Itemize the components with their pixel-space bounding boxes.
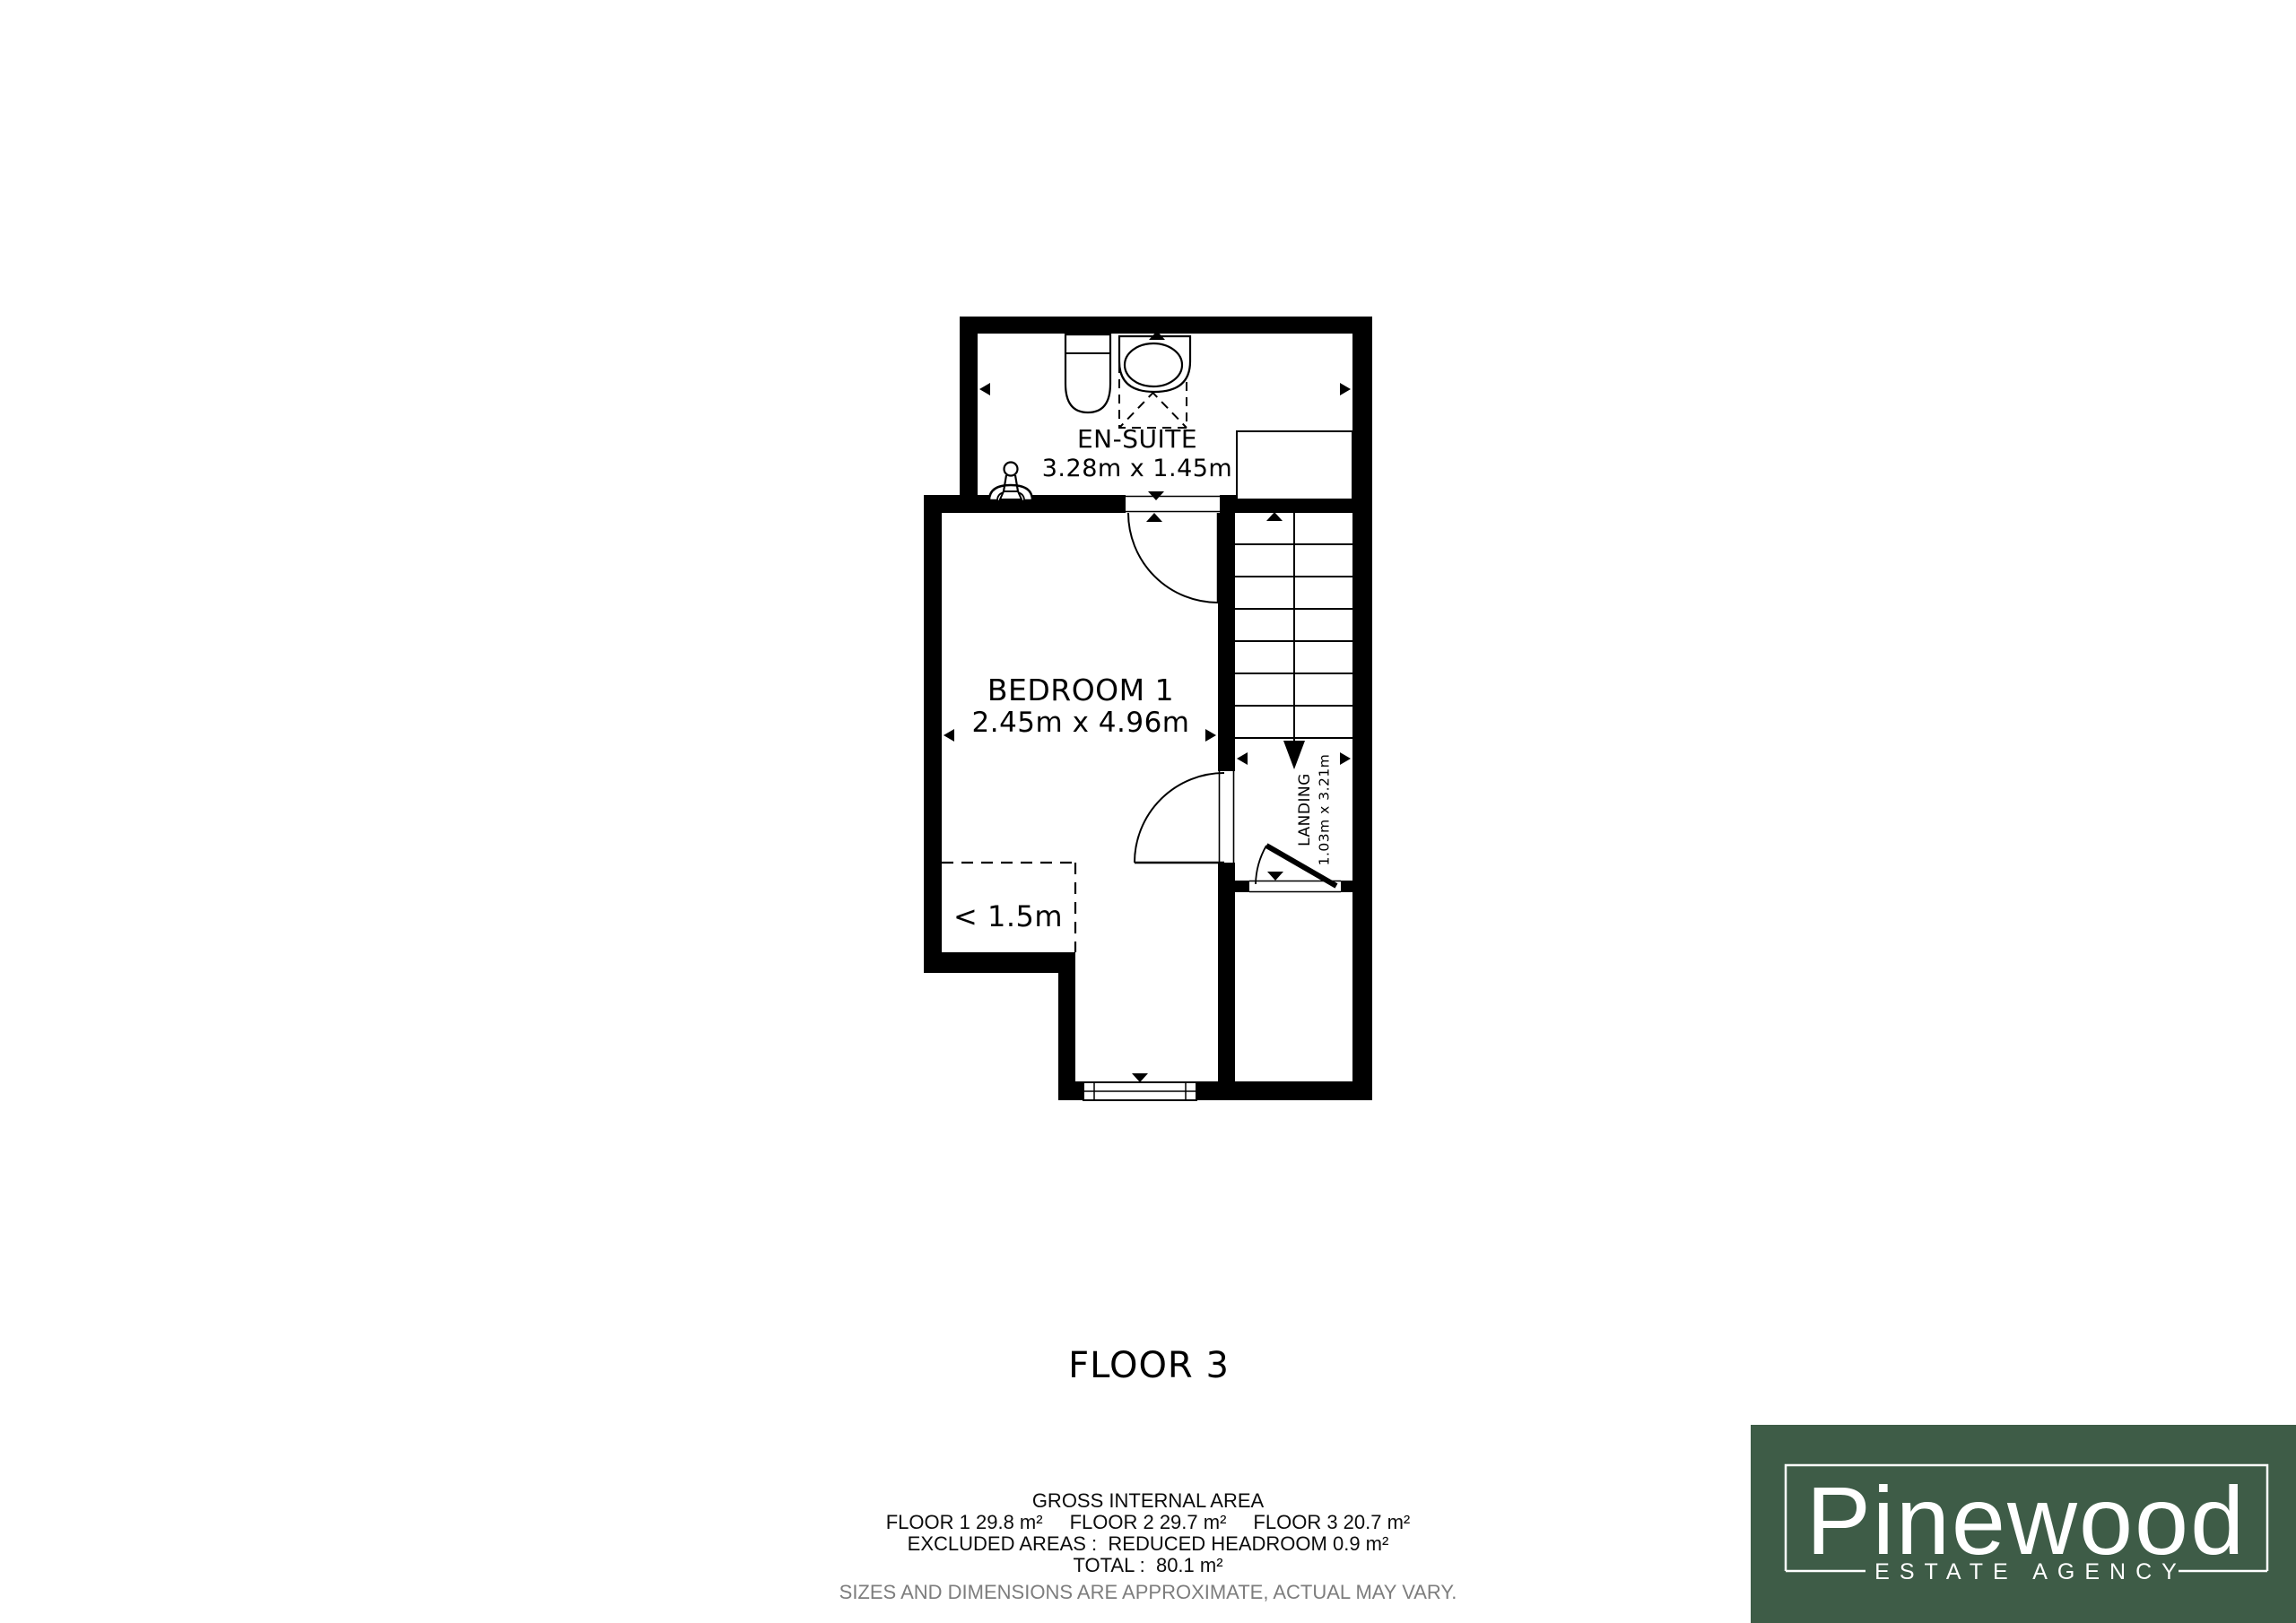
tap-icon: [989, 463, 1032, 501]
floor2-area: FLOOR 2 29.7 m²: [1070, 1512, 1227, 1533]
reduced-headroom-label: < 1.5m: [953, 899, 1063, 933]
floor-areas-row: FLOOR 1 29.8 m² FLOOR 2 29.7 m² FLOOR 3 …: [789, 1512, 1507, 1533]
bedroom-door: [1135, 773, 1224, 863]
stair-bulkhead: [1237, 431, 1352, 499]
logo-brand: Pinewood: [1806, 1466, 2246, 1575]
bedroom-dimensions: 2.45m x 4.96m: [972, 707, 1190, 739]
logo-frame: Pinewood ESTATE AGENCY: [1751, 1425, 2296, 1623]
stairs: [1235, 513, 1352, 746]
floor3-area: FLOOR 3 20.7 m²: [1253, 1512, 1410, 1533]
floor1-area: FLOOR 1 29.8 m²: [886, 1512, 1043, 1533]
ensuite-dimensions: 3.28m x 1.45m: [1042, 455, 1232, 482]
floor-title: FLOOR 3: [925, 1345, 1373, 1386]
bedroom-label: BEDROOM 1: [987, 673, 1174, 707]
stairs-down-arrow: [1283, 741, 1305, 769]
ensuite-door: [1128, 513, 1218, 603]
area-summary: GROSS INTERNAL AREA FLOOR 1 29.8 m² FLOO…: [789, 1490, 1507, 1603]
ensuite-label: EN-SUITE: [1077, 424, 1197, 454]
floor-plan-drawing: EN-SUITE 3.28m x 1.45m BEDROOM 1 2.45m x…: [897, 305, 1399, 1121]
agency-logo: Pinewood ESTATE AGENCY: [1751, 1425, 2296, 1623]
excluded-areas: EXCLUDED AREAS : REDUCED HEADROOM 0.9 m²: [789, 1533, 1507, 1555]
toilet-icon: [1065, 334, 1110, 412]
gross-internal-area-heading: GROSS INTERNAL AREA: [789, 1490, 1507, 1512]
logo-tagline: ESTATE AGENCY: [1874, 1559, 2187, 1584]
sink-icon: [1119, 336, 1190, 392]
landing-dimensions: 1.03m x 3.21m: [1317, 754, 1333, 866]
total-area: TOTAL : 80.1 m²: [789, 1555, 1507, 1576]
window: [1083, 1082, 1196, 1100]
floorplan-page: EN-SUITE 3.28m x 1.45m BEDROOM 1 2.45m x…: [0, 0, 2296, 1623]
landing-label: LANDING: [1296, 773, 1314, 846]
disclaimer: SIZES AND DIMENSIONS ARE APPROXIMATE, AC…: [789, 1582, 1507, 1603]
